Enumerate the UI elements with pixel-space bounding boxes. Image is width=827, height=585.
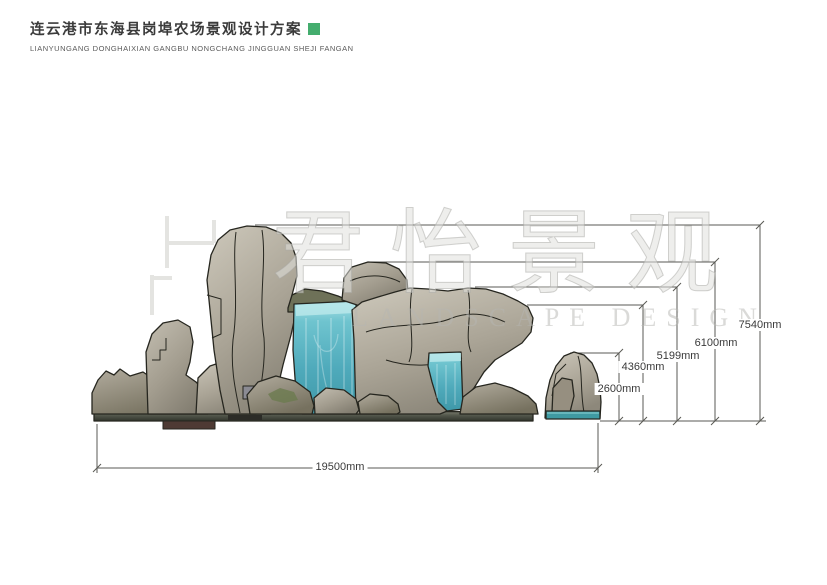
base-step-block [163,421,215,429]
dim-label-7540: 7540mm [736,319,785,331]
dim-label-4360: 4360mm [619,361,668,373]
design-sheet: 君怡景观 LANDSCAPE DESIGN 7540mm 6100mm 5199… [0,0,827,585]
dim-label-2600: 2600mm [595,383,644,395]
base-marks [228,415,262,420]
page-title: 连云港市东海县岗埠农场景观设计方案 [30,18,354,39]
rockery [92,226,601,429]
sheet-header: 连云港市东海县岗埠农场景观设计方案 LIANYUNGANG DONGHAIXIA… [30,18,354,53]
page-subtitle: LIANYUNGANG DONGHAIXIAN GANGBU NONGCHANG… [30,44,354,53]
accent-square [308,23,320,35]
page-title-text: 连云港市东海县岗埠农场景观设计方案 [30,22,302,38]
dim-label-19500: 19500mm [313,461,368,473]
right-pool [546,411,600,419]
dim-label-6100: 6100mm [692,337,741,349]
rockery-elevation-drawing [0,0,827,585]
waterfall-2-crest [430,353,461,362]
